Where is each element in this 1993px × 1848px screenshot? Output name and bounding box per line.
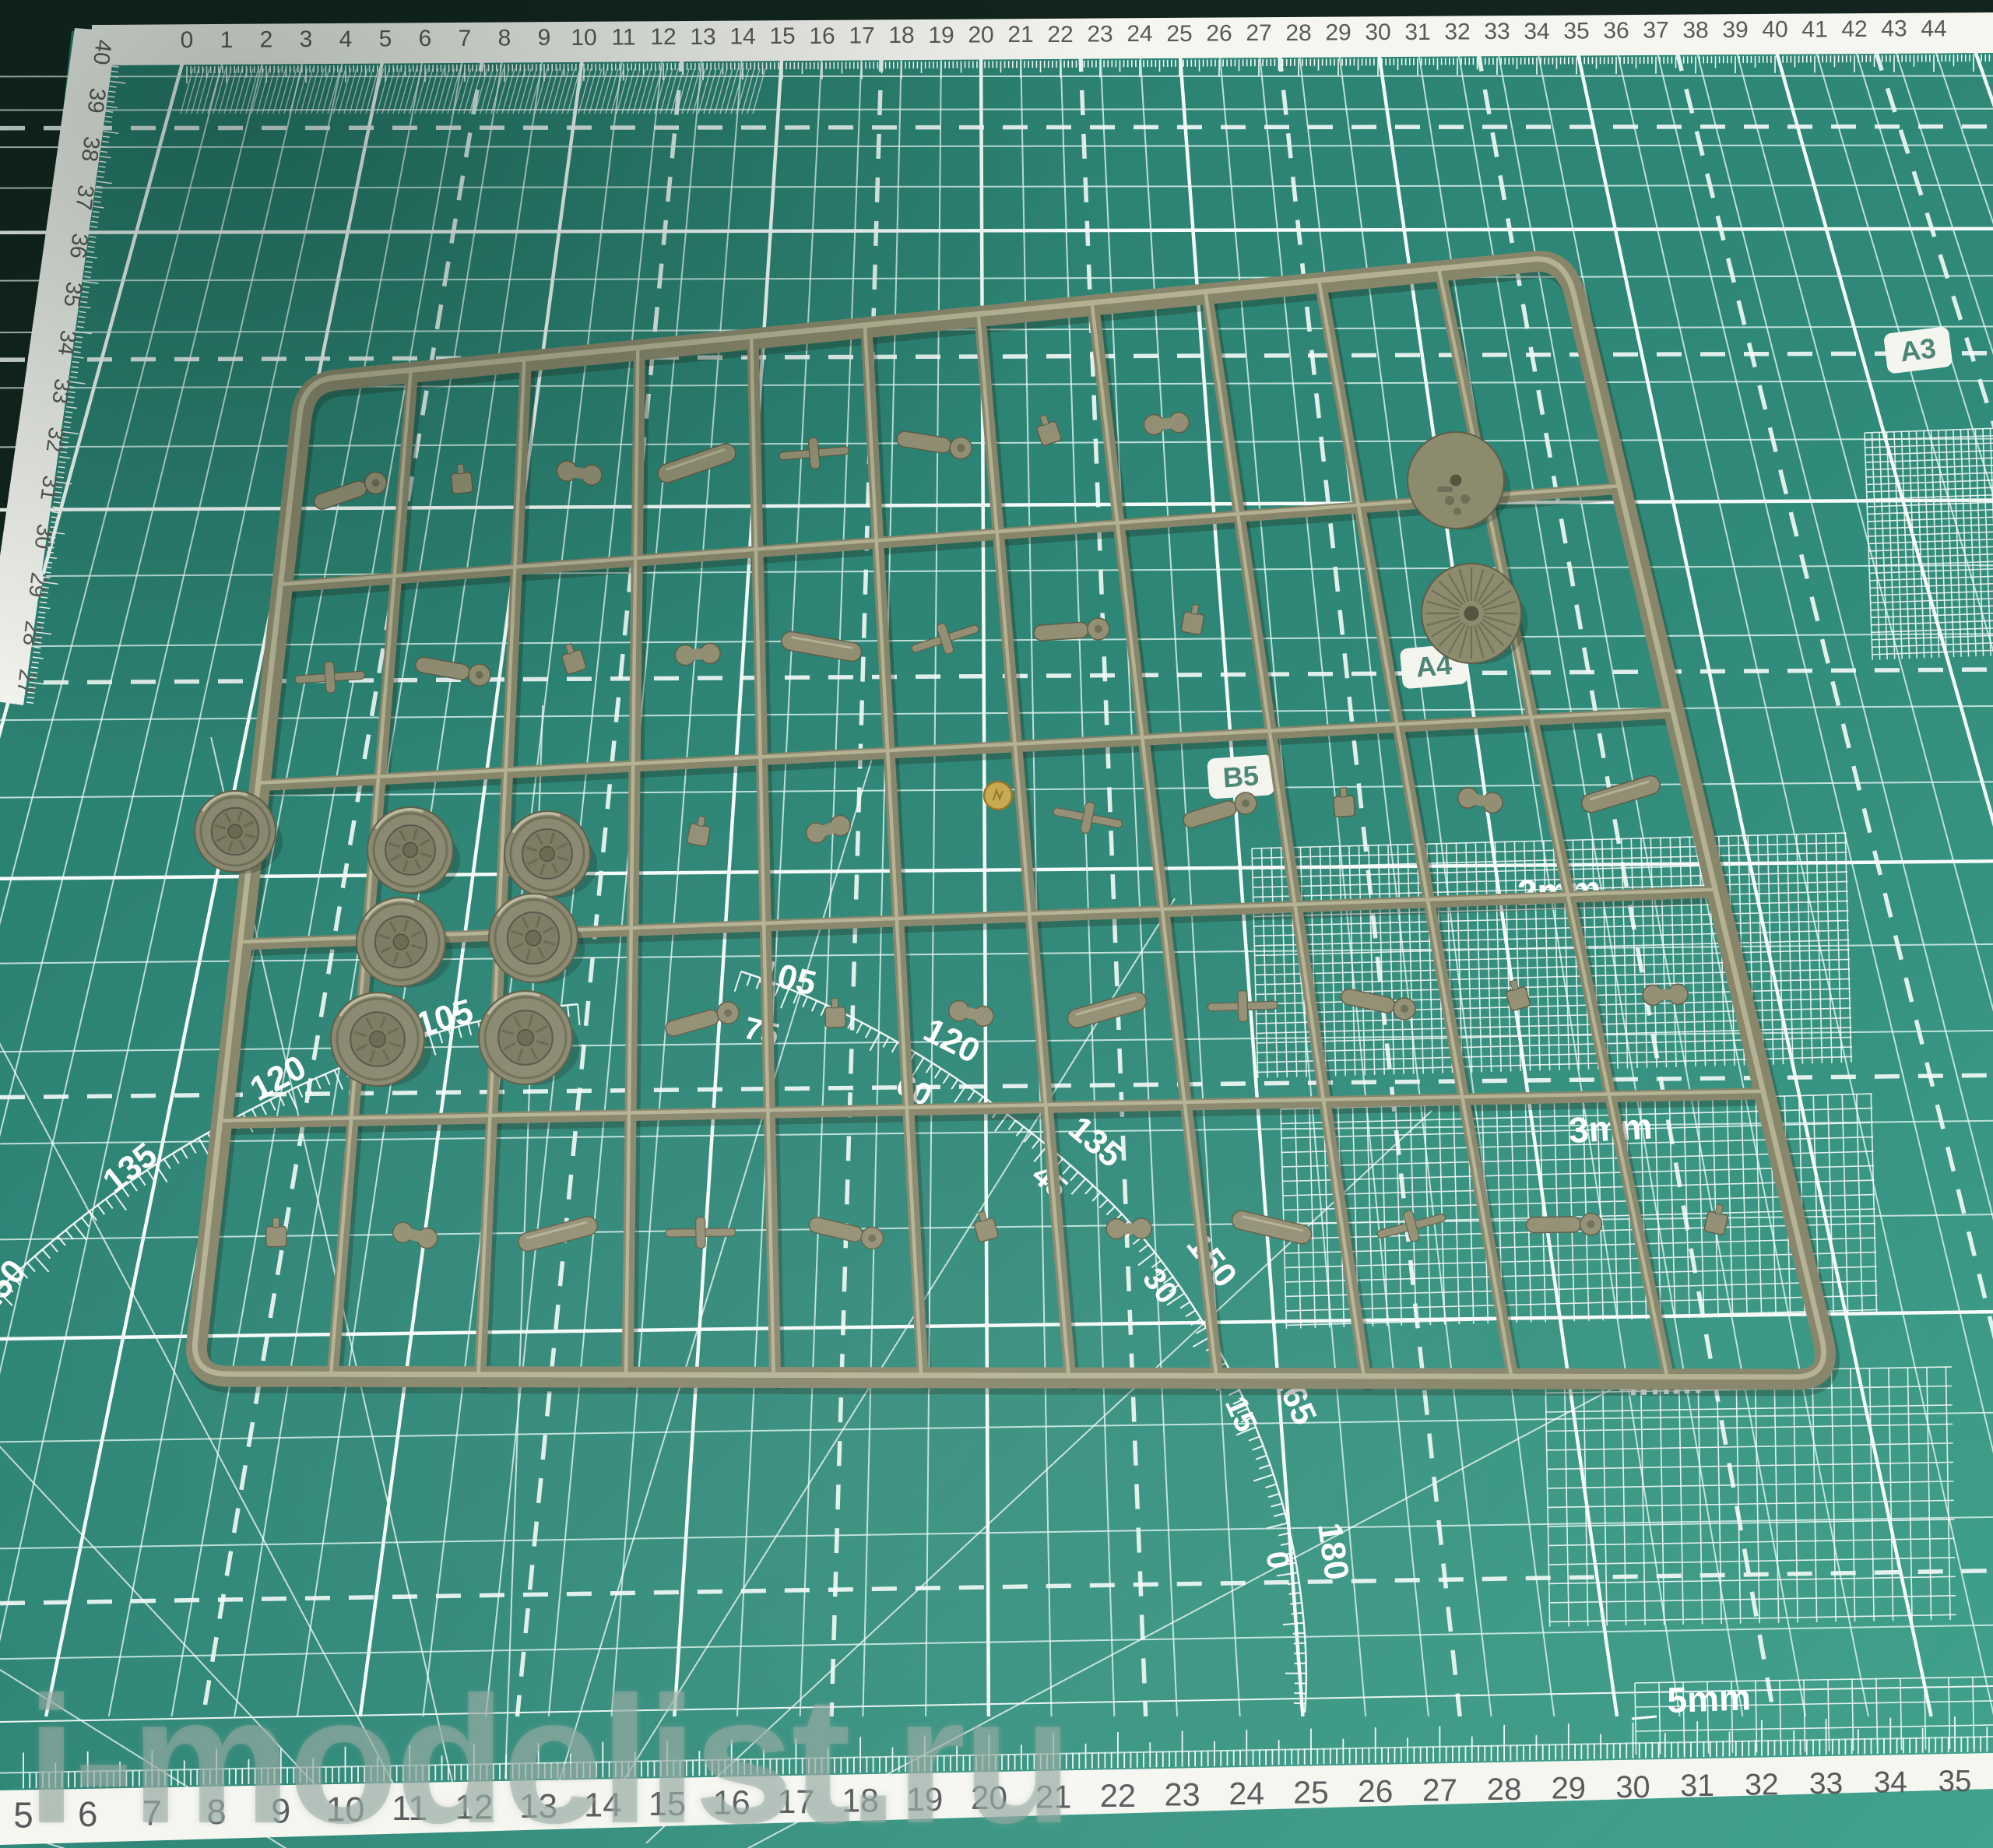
top-ruler-number: 20 xyxy=(968,22,993,47)
bottom-ruler-number: 22 xyxy=(1100,1777,1136,1814)
top-ruler-number: 7 xyxy=(459,26,472,51)
top-ruler-number: 30 xyxy=(1365,19,1390,45)
top-ruler-number: 24 xyxy=(1127,21,1152,47)
left-ruler-number: 29 xyxy=(23,571,51,599)
top-ruler-number: 11 xyxy=(611,24,635,50)
top-ruler-number: 41 xyxy=(1801,16,1827,42)
top-ruler-number: 4 xyxy=(339,26,353,52)
gold-pin xyxy=(984,782,1012,810)
bottom-ruler-number: 23 xyxy=(1165,1776,1200,1813)
top-ruler-number: 22 xyxy=(1047,22,1073,47)
top-ruler-number: 10 xyxy=(571,25,596,51)
bottom-ruler-number: 26 xyxy=(1358,1773,1393,1809)
top-ruler-number: 0 xyxy=(181,27,194,53)
bottom-ruler-number: 29 xyxy=(1552,1771,1586,1805)
top-ruler-number: 13 xyxy=(690,24,715,50)
cutting-mat-scene: 1051201351501651807560453015010512013515… xyxy=(0,0,1993,1848)
top-ruler-number: 19 xyxy=(928,23,954,48)
sprue-part xyxy=(1526,1213,1601,1235)
top-ruler-number: 34 xyxy=(1524,19,1549,44)
top-ruler-number: 6 xyxy=(419,26,432,51)
top-ruler-number: 25 xyxy=(1166,21,1192,47)
left-ruler-number: 37 xyxy=(70,184,98,212)
top-ruler-number: 8 xyxy=(498,26,511,51)
top-ruler-number: 2 xyxy=(260,27,273,53)
left-ruler-number: 40 xyxy=(88,38,116,66)
bottom-ruler-number: 32 xyxy=(1745,1769,1779,1802)
top-ruler-number: 37 xyxy=(1643,18,1668,44)
top-ruler-number: 35 xyxy=(1563,18,1589,44)
top-ruler-number: 33 xyxy=(1484,19,1510,44)
top-ruler-number: 23 xyxy=(1087,21,1112,47)
paper-size-label: A3 xyxy=(1883,326,1953,374)
bottom-ruler-number: 34 xyxy=(1874,1766,1907,1800)
top-ruler-number: 1 xyxy=(220,27,234,53)
bottom-ruler-number: 33 xyxy=(1809,1767,1843,1801)
top-ruler-number: 36 xyxy=(1603,18,1629,44)
top-ruler-number: 32 xyxy=(1444,19,1470,44)
top-ruler-number: 43 xyxy=(1881,16,1907,42)
left-ruler-number: 39 xyxy=(83,86,111,114)
bottom-ruler-number: 25 xyxy=(1293,1775,1329,1811)
top-ruler-number: 42 xyxy=(1841,16,1867,42)
top-ruler-number: 38 xyxy=(1682,17,1708,43)
bottom-ruler-number: 30 xyxy=(1615,1770,1650,1804)
top-ruler-number: 27 xyxy=(1246,20,1271,46)
left-ruler-number: 30 xyxy=(30,522,58,550)
top-ruler-number: 31 xyxy=(1404,19,1430,45)
grid-size-label: 5mm xyxy=(1667,1677,1752,1720)
top-ruler-number: 26 xyxy=(1206,20,1232,46)
bottom-ruler-number: 31 xyxy=(1680,1769,1714,1803)
left-ruler-number: 38 xyxy=(76,135,104,163)
photo-sprue-on-cutting-mat: 1051201351501651807560453015010512013515… xyxy=(0,0,1993,1848)
top-ruler-number: 21 xyxy=(1007,22,1033,47)
top-ruler-number: 17 xyxy=(849,23,874,48)
top-ruler-number: 28 xyxy=(1285,20,1311,46)
top-ruler-number: 9 xyxy=(538,25,551,51)
bottom-ruler-number: 35 xyxy=(1939,1765,1972,1798)
top-ruler-number: 29 xyxy=(1325,19,1351,45)
top-ruler-number: 15 xyxy=(769,23,795,49)
left-ruler-number: 36 xyxy=(65,232,93,260)
top-ruler-number: 40 xyxy=(1762,17,1787,43)
bottom-ruler-number: 24 xyxy=(1228,1776,1264,1811)
left-ruler-number: 27 xyxy=(12,668,40,696)
top-ruler-number: 12 xyxy=(650,24,676,50)
top-ruler-number: 5 xyxy=(379,26,392,52)
top-ruler-number: 16 xyxy=(809,23,835,49)
mat-surface xyxy=(0,17,1993,1848)
top-ruler-number: 39 xyxy=(1722,17,1748,43)
top-ruler-number: 18 xyxy=(888,23,914,48)
bottom-ruler-number: 27 xyxy=(1422,1772,1457,1808)
top-ruler-number: 44 xyxy=(1921,16,1946,41)
svg-text:B5: B5 xyxy=(1221,759,1260,793)
left-ruler-number: 35 xyxy=(58,280,86,308)
left-ruler-number: 32 xyxy=(41,426,69,454)
protractor-angle-label: 180 xyxy=(1310,1520,1356,1583)
paper-size-label: B5 xyxy=(1207,754,1274,799)
watermark: i-modelist.ru xyxy=(26,1657,1070,1848)
top-ruler-number: 14 xyxy=(729,23,755,49)
bottom-ruler-number: 28 xyxy=(1487,1772,1522,1807)
top-ruler-number: 3 xyxy=(300,26,313,52)
svg-text:A3: A3 xyxy=(1898,332,1938,367)
